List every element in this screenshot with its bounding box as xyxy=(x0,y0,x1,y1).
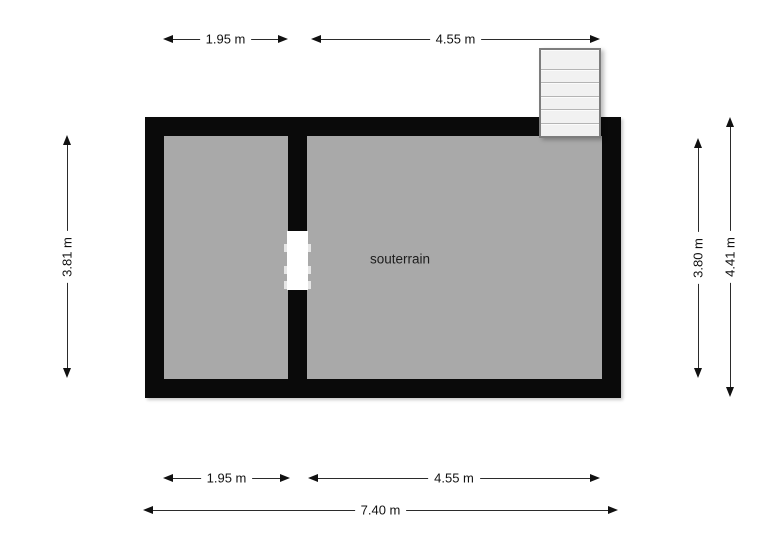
dimension-label: 4.55 m xyxy=(430,32,482,47)
dimension-label: 1.95 m xyxy=(201,471,253,486)
stair-tread xyxy=(541,110,599,123)
dimension-label: 4.41 m xyxy=(723,231,738,283)
arrow-up-icon xyxy=(726,117,734,127)
stair-tread xyxy=(541,124,599,136)
arrow-left-icon xyxy=(143,506,153,514)
room-souterrain xyxy=(307,136,602,379)
staircase-icon xyxy=(539,48,601,138)
arrow-right-icon xyxy=(278,35,288,43)
dimension-label: 4.55 m xyxy=(428,471,480,486)
arrow-down-icon xyxy=(694,368,702,378)
arrow-right-icon xyxy=(590,474,600,482)
arrow-right-icon xyxy=(280,474,290,482)
stair-tread xyxy=(541,50,599,70)
door-jamb-notch xyxy=(308,266,311,274)
arrow-up-icon xyxy=(63,135,71,145)
arrow-right-icon xyxy=(608,506,618,514)
stair-tread xyxy=(541,83,599,96)
door-jamb-notch xyxy=(308,281,311,289)
dimension-label: 7.40 m xyxy=(355,503,407,518)
arrow-left-icon xyxy=(163,474,173,482)
arrow-down-icon xyxy=(63,368,71,378)
dimension-label: 3.81 m xyxy=(60,231,75,283)
arrow-left-icon xyxy=(308,474,318,482)
floorplan-canvas: 1.95 m 4.55 m 3.81 m 3.80 m 4.41 m 1.95 … xyxy=(0,0,767,559)
arrow-down-icon xyxy=(726,387,734,397)
stair-tread xyxy=(541,97,599,110)
room-label: souterrain xyxy=(370,252,430,267)
arrow-up-icon xyxy=(694,138,702,148)
door-opening xyxy=(287,231,308,290)
arrow-left-icon xyxy=(311,35,321,43)
door-jamb-notch xyxy=(308,244,311,252)
arrow-left-icon xyxy=(163,35,173,43)
door-jamb-notch xyxy=(284,266,287,274)
door-jamb-notch xyxy=(284,281,287,289)
room-left xyxy=(164,136,288,379)
stair-tread xyxy=(541,70,599,83)
door-jamb-notch xyxy=(284,244,287,252)
dimension-label: 3.80 m xyxy=(691,232,706,284)
dimension-label: 1.95 m xyxy=(200,32,252,47)
arrow-right-icon xyxy=(590,35,600,43)
